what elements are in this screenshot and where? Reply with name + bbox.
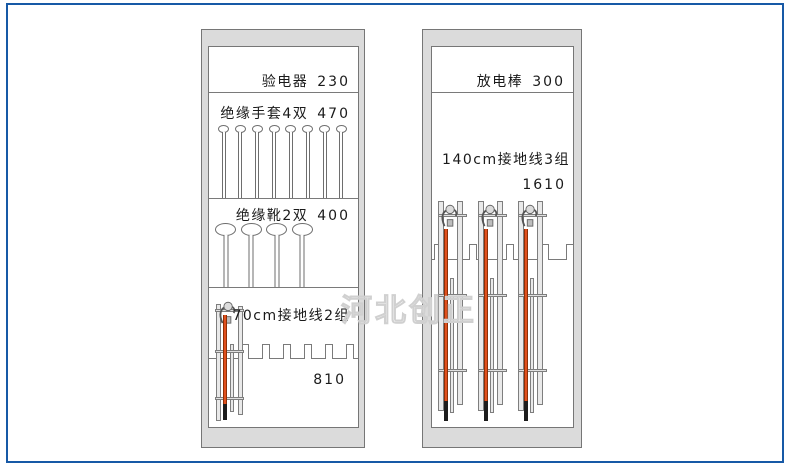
glove-hanger bbox=[285, 125, 296, 198]
shelf-divider bbox=[209, 92, 358, 93]
section-value-810: 810 bbox=[209, 372, 358, 388]
slot-notch bbox=[283, 344, 291, 359]
grounding-rod-tip bbox=[444, 401, 448, 421]
hanger-stem bbox=[238, 132, 242, 198]
boot-hanger-row bbox=[215, 223, 313, 287]
rack-crossbar bbox=[438, 369, 467, 372]
right-cabinet: 放电棒300 140cm接地线3组 1610 bbox=[422, 29, 582, 448]
glove-hanger bbox=[319, 125, 330, 198]
slot-notch bbox=[262, 344, 270, 359]
rack-crossbar bbox=[478, 369, 507, 372]
rack-rail bbox=[537, 201, 543, 405]
glove-hanger bbox=[269, 125, 280, 198]
rack-crossbar bbox=[518, 369, 547, 372]
shelf-divider bbox=[209, 198, 358, 199]
grounding-rod bbox=[524, 229, 528, 421]
section-value: 470 bbox=[317, 106, 350, 122]
section-value: 230 bbox=[317, 74, 350, 90]
left-cabinet: 验电器230 绝缘手套4双470 绝缘靴2双400 70cm接地线2组 810 bbox=[201, 29, 365, 448]
rack-inner-rail bbox=[490, 278, 494, 413]
glove-hanger bbox=[218, 125, 229, 198]
section-label-discharge-rod: 放电棒300 bbox=[432, 71, 573, 91]
grounding-wire-rack bbox=[517, 201, 551, 427]
grounding-rod-tip bbox=[524, 401, 528, 421]
hanger-stem bbox=[306, 132, 310, 198]
hanger-stem bbox=[323, 132, 327, 198]
glove-hanger bbox=[252, 125, 263, 198]
rack-crossbar bbox=[518, 294, 547, 297]
shelf-divider bbox=[209, 287, 358, 288]
slot-notch bbox=[566, 244, 574, 260]
section-value: 300 bbox=[532, 74, 565, 90]
hanger-stem bbox=[289, 132, 293, 198]
grounding-rod-tip bbox=[484, 401, 488, 421]
grounding-rod-tip bbox=[223, 404, 227, 420]
section-value-1610: 1610 bbox=[432, 177, 573, 193]
boot-hanger bbox=[241, 223, 262, 287]
hook-icon bbox=[518, 201, 544, 229]
hanger-stem bbox=[272, 132, 276, 198]
grounding-rod bbox=[484, 229, 488, 421]
rack-crossbar bbox=[215, 397, 244, 400]
hanger-stem bbox=[249, 235, 254, 287]
section-label-ground-wire-140cm: 140cm接地线3组 bbox=[432, 149, 573, 169]
glove-hanger bbox=[302, 125, 313, 198]
glove-hanger bbox=[235, 125, 246, 198]
hook-icon bbox=[478, 201, 504, 229]
section-value: 400 bbox=[317, 208, 350, 224]
boot-hanger bbox=[292, 223, 313, 287]
grounding-wire-rack bbox=[477, 201, 511, 427]
slot-notch bbox=[346, 344, 354, 359]
page-border bbox=[6, 3, 784, 463]
left-cabinet-panel: 验电器230 绝缘手套4双470 绝缘靴2双400 70cm接地线2组 810 bbox=[208, 46, 359, 428]
grounding-rod bbox=[223, 315, 227, 420]
section-label-ground-wire-70cm: 70cm接地线2组 bbox=[209, 305, 358, 325]
rack-inner-rail bbox=[530, 278, 534, 413]
hanger-stem bbox=[300, 235, 305, 287]
hanger-stem bbox=[223, 235, 228, 287]
section-label-voltage-detector: 验电器230 bbox=[209, 71, 358, 91]
rack-crossbar bbox=[478, 294, 507, 297]
hanger-stem bbox=[274, 235, 279, 287]
rack-crossbar bbox=[215, 350, 244, 353]
hook-icon bbox=[438, 201, 464, 229]
boot-hanger bbox=[215, 223, 236, 287]
rack-rail bbox=[497, 201, 503, 405]
section-label-insulated-boots: 绝缘靴2双400 bbox=[209, 205, 358, 225]
shelf-divider bbox=[432, 92, 573, 93]
glove-hanger bbox=[336, 125, 347, 198]
diagram-canvas: 验电器230 绝缘手套4双470 绝缘靴2双400 70cm接地线2组 810 bbox=[0, 0, 790, 469]
boot-hanger bbox=[266, 223, 287, 287]
slot-notch bbox=[304, 344, 312, 359]
hanger-stem bbox=[255, 132, 259, 198]
hanger-stem bbox=[339, 132, 343, 198]
section-label-insulated-gloves: 绝缘手套4双470 bbox=[209, 103, 358, 123]
hanger-stem bbox=[222, 132, 226, 198]
right-cabinet-panel: 放电棒300 140cm接地线3组 1610 bbox=[431, 46, 574, 428]
slot-notch bbox=[325, 344, 333, 359]
glove-hanger-row bbox=[218, 125, 347, 198]
watermark-text: 河北创正 bbox=[341, 285, 477, 330]
